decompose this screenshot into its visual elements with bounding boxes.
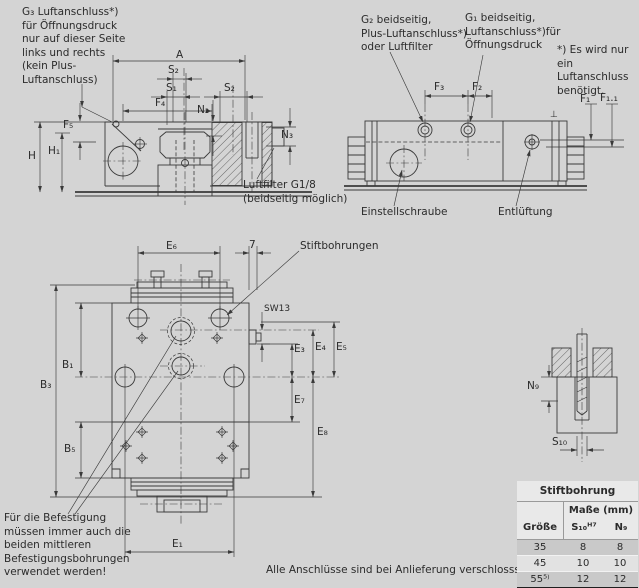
- stiftbohrung-table: Stiftbohrung Maße (mm) Größe S₁₀ᴴ⁷ N₉ 35…: [517, 481, 638, 588]
- g2-air-connection-note: G₂ beidseitig, Plus-Luftanschluss*) oder…: [361, 14, 467, 55]
- dim-a: A: [176, 49, 183, 61]
- table-cell: 12: [603, 572, 637, 587]
- dim-e8: E₈: [317, 426, 328, 438]
- dim-n3: N₃: [281, 129, 293, 141]
- entlueftung-label: Entlüftung: [498, 206, 553, 220]
- dim-h: H: [28, 150, 36, 162]
- dim-s2-left: S₂: [168, 64, 179, 76]
- dim-e1: E₁: [172, 538, 183, 550]
- dim-n2: N₂: [197, 104, 209, 116]
- dim-e6: E₆: [166, 240, 177, 252]
- befestigung-note: Für die Befestigung müssen immer auch di…: [4, 512, 131, 580]
- perpendicularity-symbol: ⊥: [550, 109, 558, 121]
- dim-f2: F₂: [472, 81, 482, 93]
- air-footnote: *) Es wird nur ein Luftanschluss benötig…: [557, 44, 639, 98]
- table-subtitle-spacer: [517, 502, 563, 518]
- table-col-s10: S₁₀ᴴ⁷: [563, 518, 604, 539]
- table-cell: 12: [563, 572, 603, 587]
- g3-air-connection-note: G₃ Luftanschluss*) für Öffnungsdruck nur…: [22, 6, 125, 87]
- dim-e4: E₄: [315, 341, 326, 353]
- dim-e5: E₅: [336, 341, 347, 353]
- dim-e3: E₃: [294, 343, 305, 355]
- dim-b5: B₅: [64, 443, 75, 455]
- table-cell: 45: [517, 556, 563, 571]
- technical-drawing-page: G₃ Luftanschluss*) für Öffnungsdruck nur…: [0, 0, 639, 588]
- dim-h1: H₁: [48, 145, 60, 157]
- dim-f3: F₃: [434, 81, 444, 93]
- dim-sw13: SW13: [264, 303, 290, 315]
- table-row: 55⁵⁾ 12 12: [517, 572, 638, 587]
- dim-b1: B₁: [62, 359, 73, 371]
- table-row: 35 8 8: [517, 540, 638, 555]
- table-cell: 10: [563, 556, 603, 571]
- table-col-n9: N₉: [604, 518, 638, 539]
- einstellschraube-label: Einstellschraube: [361, 206, 448, 220]
- delivery-note: Alle Anschlüsse sind bei Anlieferung ver…: [266, 564, 536, 578]
- dim-s1: S₁: [166, 82, 177, 94]
- dim-s10: S₁₀: [552, 436, 567, 448]
- dim-f1: F₁: [580, 93, 590, 105]
- luftfilter-note: Luftfilter G1/8 (beidseitig möglich): [243, 179, 347, 206]
- table-row: 45 10 10: [517, 555, 638, 572]
- dim-e7: E₇: [294, 394, 305, 406]
- table-cell: 8: [603, 540, 637, 555]
- table-cell: 55⁵⁾: [517, 572, 563, 587]
- stiftbohrungen-label: Stiftbohrungen: [300, 240, 378, 254]
- dim-f4: F₄: [155, 97, 165, 109]
- table-cell: 35: [517, 540, 563, 555]
- table-cell: 8: [563, 540, 603, 555]
- dim-seven: 7: [249, 239, 256, 251]
- dim-f5: F₅: [63, 119, 73, 131]
- g1-air-connection-note: G₁ beidseitig, Luftanschluss*)für Öffnun…: [465, 12, 560, 53]
- table-col-groesse: Größe: [517, 518, 563, 539]
- table-title: Stiftbohrung: [517, 481, 638, 502]
- position-marks: [120, 332, 239, 464]
- dim-n9: N₉: [527, 380, 539, 392]
- dim-s2-right: S₂: [224, 82, 235, 94]
- table-subtitle: Maße (mm): [563, 502, 638, 518]
- dim-b3: B₃: [40, 379, 51, 391]
- dim-f1-1: F₁.₁: [600, 92, 618, 104]
- table-cell: 10: [603, 556, 637, 571]
